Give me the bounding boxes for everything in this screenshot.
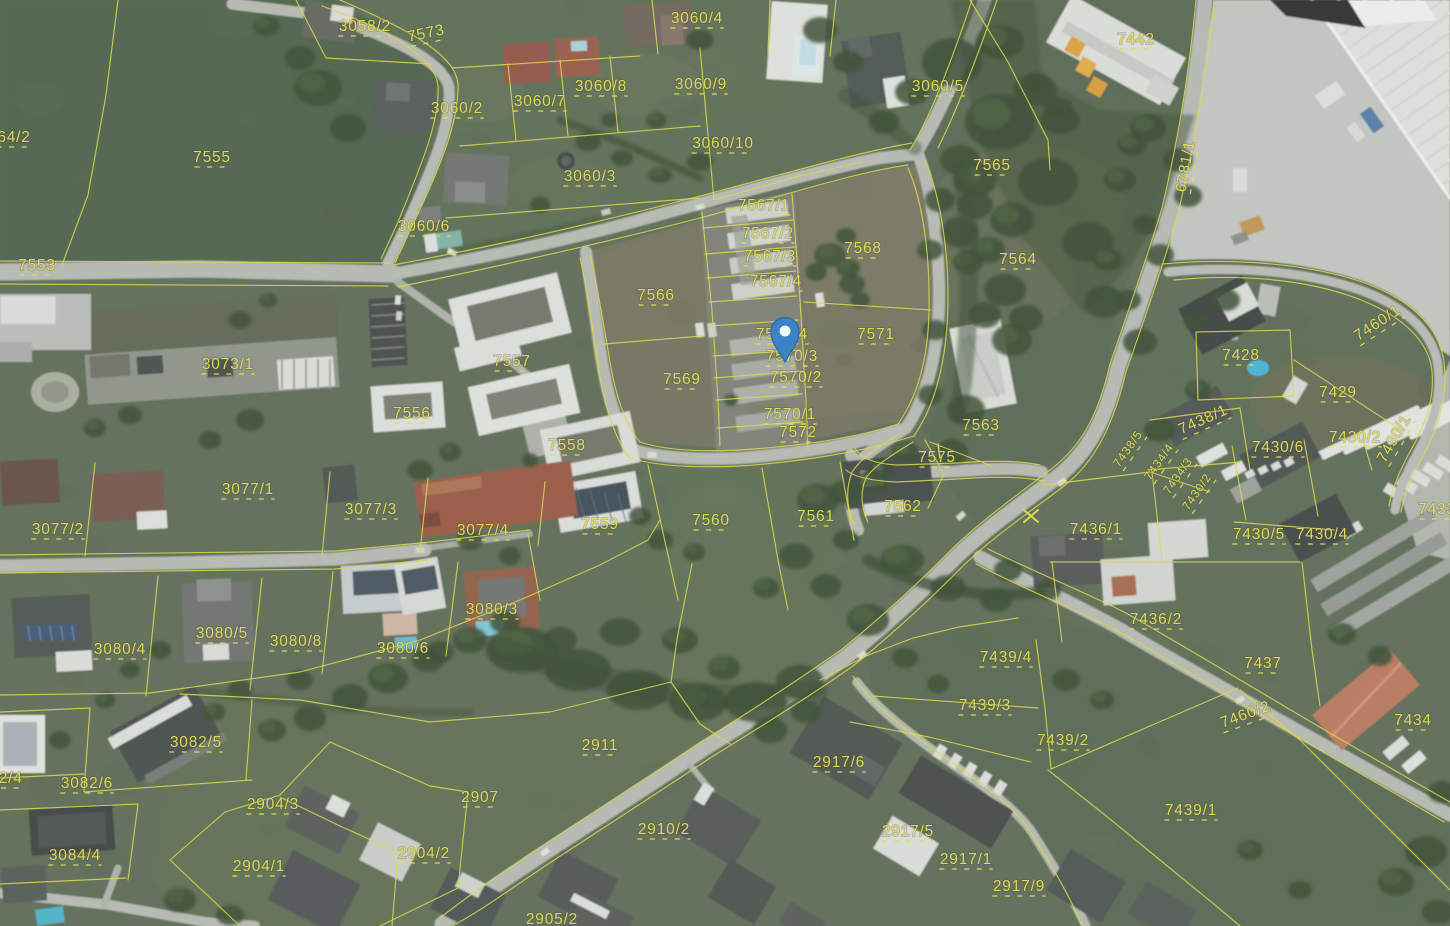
svg-text:7442: 7442 bbox=[1117, 31, 1155, 48]
svg-text:7439/3: 7439/3 bbox=[959, 697, 1011, 714]
svg-text:7564: 7564 bbox=[999, 251, 1037, 268]
svg-text:7428: 7428 bbox=[1222, 347, 1260, 364]
svg-text:7434: 7434 bbox=[1394, 712, 1432, 729]
svg-text:2911: 2911 bbox=[582, 737, 619, 754]
svg-text:3060/3: 3060/3 bbox=[564, 168, 616, 185]
svg-text:3077/3: 3077/3 bbox=[345, 501, 397, 518]
svg-text:3060/10: 3060/10 bbox=[692, 135, 754, 152]
svg-text:3073/1: 3073/1 bbox=[202, 356, 254, 373]
svg-text:3080/5: 3080/5 bbox=[196, 625, 248, 642]
svg-text:7433: 7433 bbox=[1418, 501, 1450, 518]
svg-text:7561: 7561 bbox=[797, 508, 835, 525]
svg-text:7568: 7568 bbox=[844, 240, 882, 257]
svg-text:7430/5: 7430/5 bbox=[1233, 526, 1285, 543]
svg-text:7570/1: 7570/1 bbox=[764, 406, 816, 423]
svg-text:3058/2: 3058/2 bbox=[339, 18, 391, 35]
svg-text:7567/1: 7567/1 bbox=[738, 197, 790, 214]
svg-text:3060/9: 3060/9 bbox=[675, 76, 727, 93]
svg-text:2917/9: 2917/9 bbox=[993, 878, 1045, 895]
svg-text:7439/4: 7439/4 bbox=[980, 649, 1032, 666]
svg-text:3080/6: 3080/6 bbox=[377, 640, 429, 657]
svg-text:7570/2: 7570/2 bbox=[770, 369, 822, 386]
svg-text:2917/5: 2917/5 bbox=[882, 823, 934, 840]
svg-text:7430/2: 7430/2 bbox=[1329, 429, 1381, 446]
svg-text:3080/3: 3080/3 bbox=[466, 601, 518, 618]
svg-text:3084/4: 3084/4 bbox=[49, 847, 101, 864]
svg-text:7553: 7553 bbox=[18, 257, 56, 274]
svg-text:2917/6: 2917/6 bbox=[813, 754, 865, 771]
svg-text:3077/4: 3077/4 bbox=[457, 522, 509, 539]
svg-text:7439/1: 7439/1 bbox=[1165, 802, 1217, 819]
svg-text:3060/2: 3060/2 bbox=[431, 100, 483, 117]
svg-text:3080/4: 3080/4 bbox=[94, 641, 146, 658]
svg-text:2910/2: 2910/2 bbox=[638, 821, 690, 838]
svg-text:7555: 7555 bbox=[193, 149, 231, 166]
svg-text:7560: 7560 bbox=[692, 512, 730, 529]
svg-text:3082/6: 3082/6 bbox=[61, 775, 113, 792]
svg-text:3060/5: 3060/5 bbox=[912, 78, 964, 95]
svg-text:7436/2: 7436/2 bbox=[1130, 611, 1182, 628]
svg-text:82/4: 82/4 bbox=[0, 770, 23, 787]
svg-text:7436/1: 7436/1 bbox=[1070, 521, 1122, 538]
svg-text:7429: 7429 bbox=[1319, 384, 1357, 401]
svg-text:3060/6: 3060/6 bbox=[398, 218, 450, 235]
svg-text:2904/2: 2904/2 bbox=[398, 845, 450, 862]
svg-text:7566: 7566 bbox=[637, 287, 675, 304]
svg-text:7430/6: 7430/6 bbox=[1252, 439, 1304, 456]
svg-text:7437: 7437 bbox=[1244, 655, 1282, 672]
svg-text:7430/4: 7430/4 bbox=[1296, 526, 1348, 543]
svg-text:7559: 7559 bbox=[581, 516, 619, 533]
svg-text:7569: 7569 bbox=[663, 371, 701, 388]
svg-text:2905/2: 2905/2 bbox=[526, 911, 578, 926]
svg-text:2917/1: 2917/1 bbox=[940, 851, 992, 868]
svg-text:2907: 2907 bbox=[461, 789, 499, 806]
svg-text:3060/8: 3060/8 bbox=[575, 78, 627, 95]
svg-text:7557: 7557 bbox=[493, 353, 531, 370]
svg-text:7556: 7556 bbox=[393, 405, 431, 422]
svg-text:3077/2: 3077/2 bbox=[32, 521, 84, 538]
svg-text:7565: 7565 bbox=[973, 157, 1011, 174]
svg-text:2904/3: 2904/3 bbox=[247, 796, 299, 813]
svg-text:3077/1: 3077/1 bbox=[222, 481, 274, 498]
svg-text:7563: 7563 bbox=[962, 417, 1000, 434]
svg-text:64/2: 64/2 bbox=[0, 129, 31, 146]
svg-text:7562: 7562 bbox=[884, 498, 922, 515]
svg-text:3060/7: 3060/7 bbox=[514, 93, 566, 110]
svg-text:7575: 7575 bbox=[918, 449, 956, 466]
svg-text:7567/3: 7567/3 bbox=[744, 248, 796, 265]
svg-text:7571: 7571 bbox=[857, 326, 895, 343]
svg-text:7558: 7558 bbox=[548, 437, 586, 454]
svg-text:7439/2: 7439/2 bbox=[1037, 732, 1089, 749]
svg-text:2904/1: 2904/1 bbox=[233, 858, 285, 875]
svg-text:3080/8: 3080/8 bbox=[270, 633, 322, 650]
svg-text:7572: 7572 bbox=[779, 424, 817, 441]
svg-text:7567/2: 7567/2 bbox=[742, 225, 794, 242]
svg-text:7567/4: 7567/4 bbox=[750, 273, 802, 290]
svg-text:3082/5: 3082/5 bbox=[170, 734, 222, 751]
svg-text:3060/4: 3060/4 bbox=[671, 10, 723, 27]
